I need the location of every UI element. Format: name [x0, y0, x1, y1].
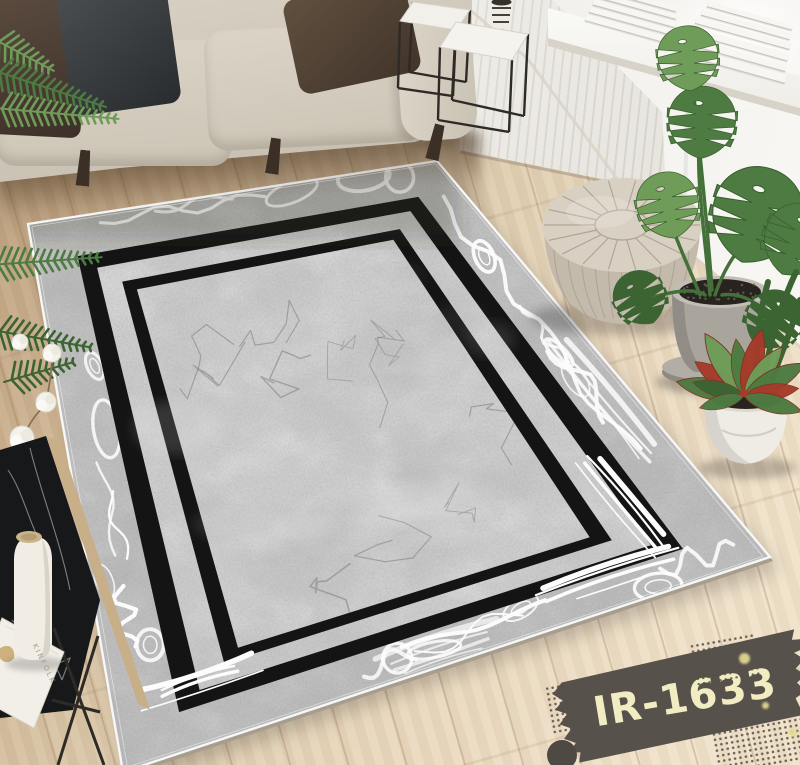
label-corner-dot: [547, 740, 577, 765]
accent-dot: [739, 653, 750, 664]
accent-dot: [762, 702, 769, 709]
fern-frond: [0, 247, 102, 281]
fern-frond: [0, 31, 54, 73]
cotton-puff: [43, 344, 61, 362]
side-table-decor: [0, 320, 220, 765]
cotton-puff: [12, 334, 28, 350]
cotton-puff: [36, 392, 56, 412]
monstera-leaf: [629, 166, 706, 245]
potted-plants: [500, 0, 800, 560]
monstera-leaf: [665, 84, 739, 160]
fern-frond: [0, 59, 106, 110]
monstera-leaf: [654, 23, 722, 93]
living-room-rug-photo: KINFOLK IR-1633: [0, 0, 800, 765]
monstera-leaf: [603, 261, 677, 336]
accent-dot: [788, 728, 797, 737]
